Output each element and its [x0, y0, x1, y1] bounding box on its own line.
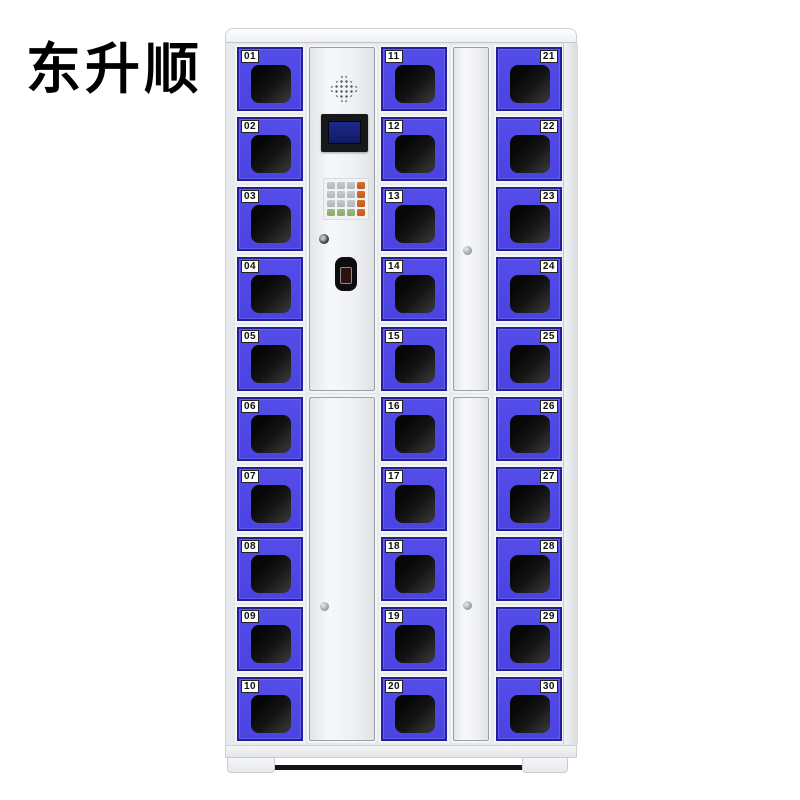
locker-door: 19 — [381, 607, 447, 671]
keypad-key — [347, 200, 355, 207]
locker-window — [510, 625, 550, 663]
control-panel — [309, 47, 375, 391]
product-photo: 东升顺 01 02 03 04 05 06 07 08 09 10 — [0, 0, 800, 800]
locker-door: 05 — [237, 327, 303, 391]
locker-door: 03 — [237, 187, 303, 251]
keypad-key — [347, 191, 355, 198]
keypad-key — [337, 191, 345, 198]
locker-window — [395, 485, 435, 523]
locker-window — [251, 485, 291, 523]
locker-window — [395, 135, 435, 173]
locker-door: 08 — [237, 537, 303, 601]
locker-number-tag: 22 — [540, 120, 558, 133]
panel-screw-icon — [463, 601, 472, 610]
locker-window — [251, 135, 291, 173]
locker-door: 24 — [496, 257, 562, 321]
speaker-grille-icon — [329, 74, 359, 104]
keyhole-icon — [319, 234, 329, 244]
locker-column-2: 11 12 13 14 15 16 17 18 19 20 — [381, 47, 447, 741]
locker-window — [395, 695, 435, 733]
locker-door: 27 — [496, 467, 562, 531]
locker-door: 09 — [237, 607, 303, 671]
locker-window — [395, 205, 435, 243]
locker-window — [510, 415, 550, 453]
locker-window — [510, 695, 550, 733]
lock-slot — [340, 267, 352, 284]
locker-window — [251, 695, 291, 733]
locker-window — [395, 275, 435, 313]
keypad-key — [327, 191, 335, 198]
locker-door: 15 — [381, 327, 447, 391]
locker-window — [251, 625, 291, 663]
locker-number-tag: 10 — [241, 680, 259, 693]
locker-door: 21 — [496, 47, 562, 111]
locker-door: 26 — [496, 397, 562, 461]
locker-door: 30 — [496, 677, 562, 741]
locker-door: 25 — [496, 327, 562, 391]
locker-window — [510, 485, 550, 523]
keypad-key — [357, 200, 365, 207]
keypad-key — [327, 200, 335, 207]
locker-number-tag: 06 — [241, 400, 259, 413]
keypad-key — [357, 209, 365, 216]
locker-number-tag: 16 — [385, 400, 403, 413]
locker-door: 07 — [237, 467, 303, 531]
locker-door: 12 — [381, 117, 447, 181]
keypad-key — [327, 182, 335, 189]
keypad-key — [347, 182, 355, 189]
locker-window — [251, 205, 291, 243]
locker-door: 13 — [381, 187, 447, 251]
electronic-lock-icon — [335, 257, 357, 291]
locker-number-tag: 08 — [241, 540, 259, 553]
locker-door: 17 — [381, 467, 447, 531]
locker-number-tag: 25 — [540, 330, 558, 343]
locker-door: 23 — [496, 187, 562, 251]
locker-window — [251, 65, 291, 103]
locker-window — [251, 555, 291, 593]
keypad-key — [337, 209, 345, 216]
locker-door: 16 — [381, 397, 447, 461]
locker-window — [395, 555, 435, 593]
locker-number-tag: 21 — [540, 50, 558, 63]
locker-number-tag: 09 — [241, 610, 259, 623]
divider-panel-bottom — [453, 397, 489, 741]
locker-door: 22 — [496, 117, 562, 181]
keypad-key — [327, 209, 335, 216]
locker-number-tag: 27 — [540, 470, 558, 483]
locker-number-tag: 17 — [385, 470, 403, 483]
locker-window — [395, 345, 435, 383]
panel-screw-icon — [320, 602, 329, 611]
cabinet-foot-right — [522, 757, 568, 773]
service-panel-bottom-left — [309, 397, 375, 741]
locker-column-3: 21 22 23 24 25 26 27 28 29 30 — [496, 47, 562, 741]
locker-window — [395, 415, 435, 453]
control-column — [309, 47, 375, 741]
divider-column — [453, 47, 489, 741]
locker-door: 18 — [381, 537, 447, 601]
locker-door: 14 — [381, 257, 447, 321]
locker-door: 11 — [381, 47, 447, 111]
locker-window — [251, 275, 291, 313]
panel-screw-icon — [463, 246, 472, 255]
locker-cabinet: 01 02 03 04 05 06 07 08 09 10 — [225, 28, 577, 776]
cabinet-top-cap — [225, 28, 577, 43]
lcd-screen-display — [328, 121, 361, 144]
locker-number-tag: 20 — [385, 680, 403, 693]
locker-window — [251, 345, 291, 383]
locker-door: 29 — [496, 607, 562, 671]
locker-column-1: 01 02 03 04 05 06 07 08 09 10 — [237, 47, 303, 741]
locker-number-tag: 12 — [385, 120, 403, 133]
locker-window — [510, 135, 550, 173]
keypad-key — [357, 191, 365, 198]
locker-number-tag: 23 — [540, 190, 558, 203]
locker-window — [395, 625, 435, 663]
locker-number-tag: 05 — [241, 330, 259, 343]
locker-door: 01 — [237, 47, 303, 111]
keypad — [323, 178, 369, 220]
keypad-key — [337, 182, 345, 189]
locker-window — [251, 415, 291, 453]
locker-number-tag: 13 — [385, 190, 403, 203]
lcd-screen — [321, 114, 368, 152]
locker-door: 02 — [237, 117, 303, 181]
locker-door: 20 — [381, 677, 447, 741]
locker-window — [395, 65, 435, 103]
cabinet-body: 01 02 03 04 05 06 07 08 09 10 — [225, 43, 577, 745]
locker-number-tag: 24 — [540, 260, 558, 273]
locker-number-tag: 29 — [540, 610, 558, 623]
brand-logo: 东升顺 — [26, 40, 203, 101]
keypad-key — [347, 209, 355, 216]
locker-number-tag: 11 — [385, 50, 403, 63]
cabinet-foot-left — [227, 757, 275, 773]
locker-number-tag: 26 — [540, 400, 558, 413]
locker-number-tag: 14 — [385, 260, 403, 273]
divider-panel-top — [453, 47, 489, 391]
locker-number-tag: 15 — [385, 330, 403, 343]
locker-window — [510, 345, 550, 383]
locker-number-tag: 18 — [385, 540, 403, 553]
cabinet-shadow — [270, 765, 523, 770]
locker-door: 06 — [237, 397, 303, 461]
locker-number-tag: 28 — [540, 540, 558, 553]
locker-door: 10 — [237, 677, 303, 741]
locker-number-tag: 30 — [540, 680, 558, 693]
locker-door: 04 — [237, 257, 303, 321]
locker-number-tag: 19 — [385, 610, 403, 623]
locker-number-tag: 02 — [241, 120, 259, 133]
locker-number-tag: 04 — [241, 260, 259, 273]
locker-number-tag: 07 — [241, 470, 259, 483]
locker-number-tag: 01 — [241, 50, 259, 63]
keypad-key — [337, 200, 345, 207]
cabinet-side-edge — [563, 43, 578, 745]
locker-window — [510, 275, 550, 313]
locker-window — [510, 555, 550, 593]
locker-number-tag: 03 — [241, 190, 259, 203]
locker-door: 28 — [496, 537, 562, 601]
locker-window — [510, 205, 550, 243]
locker-window — [510, 65, 550, 103]
keypad-key — [357, 182, 365, 189]
